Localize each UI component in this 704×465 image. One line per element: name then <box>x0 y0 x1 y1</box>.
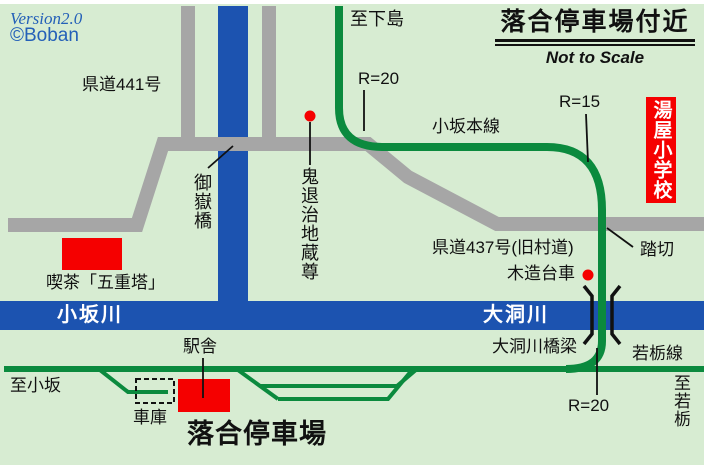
road-vertical-east <box>262 6 276 148</box>
label-r20-top: R=20 <box>358 70 399 88</box>
title-underline-thin <box>495 44 695 46</box>
label-to-shimojima: 至下島 <box>350 10 404 29</box>
label-to-wakatochi: 至若栃 <box>672 374 689 428</box>
jizo-marker-dot <box>305 111 316 122</box>
station-building-rect <box>178 379 230 412</box>
wooden-bogie-dot <box>583 270 594 281</box>
label-cafe: 喫茶「五重塔」 <box>46 274 165 292</box>
label-to-kosaka: 至小坂 <box>10 377 61 395</box>
station-area-map: Version2.0 ©Boban 落合停車場付近 Not to Scale 至… <box>0 0 704 465</box>
label-kosaka-river: 小坂川 <box>57 305 123 327</box>
label-wooden-bogie: 木造台車 <box>507 265 575 283</box>
scale-note: Not to Scale <box>492 49 698 67</box>
label-wakatochi-line: 若栃線 <box>632 345 683 363</box>
cafe-building-rect <box>62 238 122 270</box>
label-route-441: 県道441号 <box>82 76 161 94</box>
label-station-building: 駅舎 <box>183 338 217 356</box>
label-kosaka-main-line: 小坂本線 <box>432 118 500 136</box>
label-obora-bridge: 大洞川橋梁 <box>492 338 577 356</box>
page-title: 落合停車場付近 <box>492 9 698 36</box>
top-margin <box>0 0 704 4</box>
title-underline-thick <box>495 39 695 42</box>
label-oni-jizo: 鬼退治地蔵尊 <box>300 167 318 281</box>
label-obora-river: 大洞川 <box>483 305 549 327</box>
road-vertical-west <box>181 6 195 148</box>
label-route-437: 県道437号(旧村道) <box>432 239 574 257</box>
yuya-school-box: 湯屋小学校 <box>646 97 676 203</box>
label-ontake-bridge: 御嶽橋 <box>193 173 211 230</box>
label-r20-bottom: R=20 <box>568 397 609 415</box>
label-depot: 車庫 <box>133 409 167 427</box>
label-r15: R=15 <box>559 93 600 111</box>
label-crossing: 踏切 <box>640 241 674 259</box>
label-station-name: 落合停車場 <box>187 420 327 449</box>
credit-text: ©Boban <box>10 26 79 47</box>
